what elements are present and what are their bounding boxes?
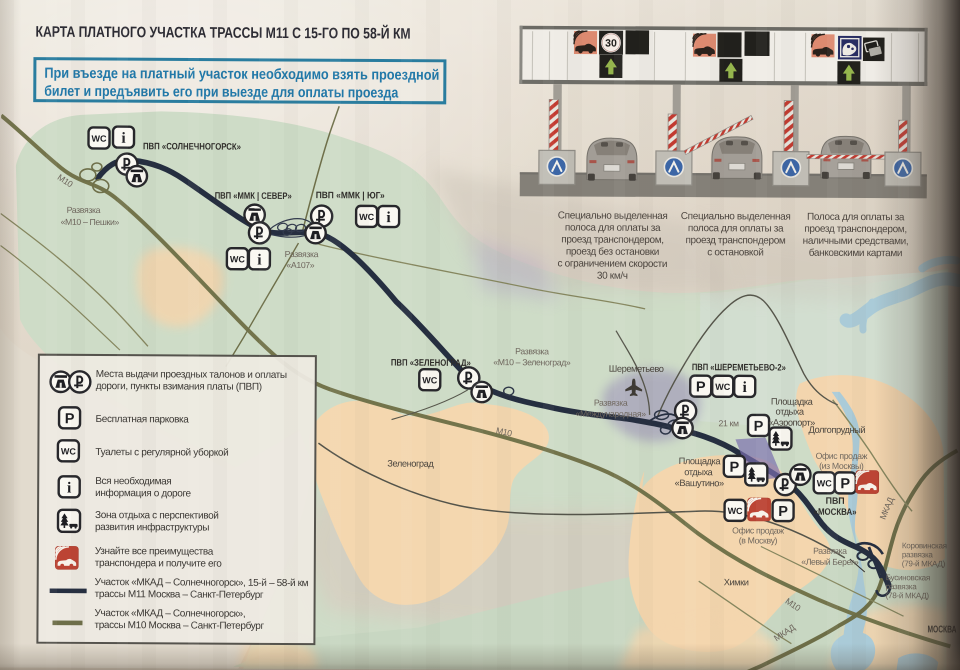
svg-text:«Вашутино»: «Вашутино» xyxy=(675,478,724,488)
svg-text:ПВП «ЗЕЛЕНОГРАД»: ПВП «ЗЕЛЕНОГРАД» xyxy=(391,357,471,368)
svg-text:«А107»: «А107» xyxy=(286,260,314,270)
svg-text:Места выдачи проездных талонов: Места выдачи проездных талонов и оплаты xyxy=(96,369,287,381)
svg-text:«МОСКВА»: «МОСКВА» xyxy=(814,506,857,517)
svg-text:Шереметьево: Шереметьево xyxy=(609,364,664,374)
svg-text:с ограничением скорости: с ограничением скорости xyxy=(558,258,668,270)
svg-text:проезд транспондером,: проезд транспондером, xyxy=(804,224,906,236)
svg-text:банковскими картами: банковскими картами xyxy=(809,247,902,259)
svg-text:проезд транспондером: проезд транспондером xyxy=(685,235,786,247)
svg-text:транспондера и получите его: транспондера и получите его xyxy=(95,558,223,570)
svg-text:ПВП «СОЛНЕЧНОГОРСК»: ПВП «СОЛНЕЧНОГОРСК» xyxy=(143,140,241,152)
svg-text:«М10 – Пешки»: «М10 – Пешки» xyxy=(61,217,120,227)
svg-text:отдыха: отдыха xyxy=(684,467,713,477)
svg-text:ПВП: ПВП xyxy=(826,495,845,506)
svg-text:При въезде на платный участок: При въезде на платный участок необходимо… xyxy=(44,66,439,84)
svg-text:Специально выделенная: Специально выделенная xyxy=(681,211,791,223)
svg-text:с остановкой: с остановкой xyxy=(707,247,763,258)
svg-text:Развязка: Развязка xyxy=(515,346,549,356)
svg-text:проезд транспондером,: проезд транспондером, xyxy=(561,234,663,246)
svg-text:(в Москву): (в Москву) xyxy=(739,535,778,545)
svg-text:трассы М11 Москва – Санкт-Пете: трассы М11 Москва – Санкт-Петербург xyxy=(95,588,264,601)
svg-text:Полоса для оплаты за: Полоса для оплаты за xyxy=(807,212,905,224)
svg-text:Узнайте все преимущества: Узнайте все преимущества xyxy=(95,546,214,558)
svg-text:КАРТА ПЛАТНОГО УЧАСТКА ТРАССЫ: КАРТА ПЛАТНОГО УЧАСТКА ТРАССЫ М11 С 15-Г… xyxy=(36,23,411,43)
svg-text:Зона отдыха с перспективой: Зона отдыха с перспективой xyxy=(95,510,219,522)
svg-text:дороги, пункты взимания платы: дороги, пункты взимания платы (ПВП) xyxy=(96,381,262,393)
svg-text:Развязка: Развязка xyxy=(285,249,319,259)
svg-text:(78-й МКАД): (78-й МКАД) xyxy=(886,591,930,600)
svg-text:развития инфраструктуры: развития инфраструктуры xyxy=(95,521,209,534)
svg-text:Долгопрудный: Долгопрудный xyxy=(808,425,865,435)
svg-text:Развязка: Развязка xyxy=(813,546,847,556)
svg-text:Участок «МКАД – Солнечногорск»: Участок «МКАД – Солнечногорск», 15-й – 5… xyxy=(95,577,309,589)
svg-text:Площадка: Площадка xyxy=(679,456,722,466)
svg-text:«Левый Берег»: «Левый Берег» xyxy=(801,557,859,567)
svg-text:(79-й МКАД): (79-й МКАД) xyxy=(902,559,946,568)
svg-text:наличными средствами,: наличными средствами, xyxy=(803,236,909,248)
svg-text:Участок «МКАД – Солнечногорск»: Участок «МКАД – Солнечногорск», xyxy=(95,608,246,620)
svg-text:Коровинская: Коровинская xyxy=(902,541,947,550)
svg-text:полоса для оплаты за: полоса для оплаты за xyxy=(565,222,661,234)
svg-text:30: 30 xyxy=(605,37,617,49)
svg-text:информация о дороге: информация о дороге xyxy=(95,487,191,500)
svg-text:Офис продаж: Офис продаж xyxy=(732,525,784,535)
svg-text:Зеленоград: Зеленоград xyxy=(387,459,434,469)
svg-text:трассы М10 Москва – Санкт-Пете: трассы М10 Москва – Санкт-Петербург xyxy=(94,619,264,632)
svg-text:Бусиновская: Бусиновская xyxy=(886,573,930,582)
svg-text:Вся необходимая: Вся необходимая xyxy=(95,475,171,487)
svg-text:отдыха: отдыха xyxy=(776,407,805,417)
svg-text:(из Москвы): (из Москвы) xyxy=(819,461,864,471)
svg-text:билет и предъявить его при вые: билет и предъявить его при выезде для оп… xyxy=(44,84,399,102)
svg-text:развязка: развязка xyxy=(886,582,918,591)
svg-text:проезд без остановки: проезд без остановки xyxy=(566,245,659,257)
svg-text:Туалеты с регулярной уборкой: Туалеты с регулярной уборкой xyxy=(95,446,228,459)
svg-text:Химки: Химки xyxy=(724,577,749,587)
svg-text:«Международная»: «Международная» xyxy=(575,409,646,419)
svg-text:Развязка: Развязка xyxy=(594,398,628,408)
svg-text:полоса для оплаты за: полоса для оплаты за xyxy=(688,223,784,235)
svg-text:Специально выделенная: Специально выделенная xyxy=(558,210,668,222)
svg-text:ПВП «ММК | СЕВЕР»: ПВП «ММК | СЕВЕР» xyxy=(215,190,292,201)
svg-text:21 км: 21 км xyxy=(719,418,740,428)
svg-text:МОСКВА: МОСКВА xyxy=(927,624,956,635)
svg-text:ПВП «ШЕРЕМЕТЬЕВО-2»: ПВП «ШЕРЕМЕТЬЕВО-2» xyxy=(692,361,786,372)
svg-text:«М10 – Зеленоград»: «М10 – Зеленоград» xyxy=(493,357,571,367)
svg-text:ПВП «ММК | ЮГ»: ПВП «ММК | ЮГ» xyxy=(316,189,385,200)
svg-text:развязка: развязка xyxy=(902,550,934,559)
svg-text:Офис продаж: Офис продаж xyxy=(816,451,868,461)
svg-text:Площадка: Площадка xyxy=(771,397,814,407)
svg-text:30 км/ч: 30 км/ч xyxy=(597,271,628,282)
svg-text:Бесплатная парковка: Бесплатная парковка xyxy=(96,414,190,425)
svg-text:Развязка: Развязка xyxy=(67,205,101,215)
